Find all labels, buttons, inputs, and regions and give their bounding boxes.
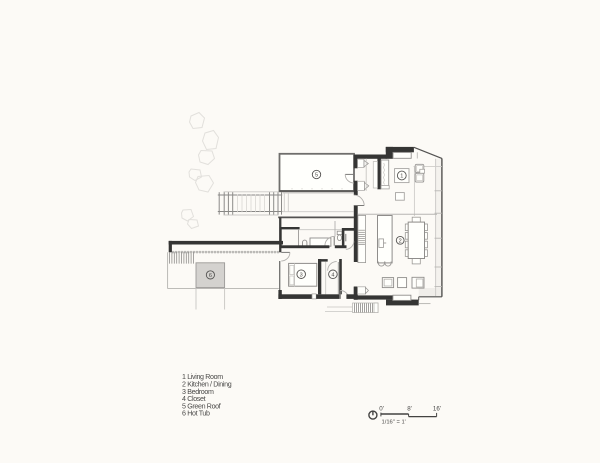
svg-text:3: 3 (300, 272, 303, 278)
svg-text:6: 6 (209, 273, 212, 279)
svg-text:4: 4 (331, 272, 334, 278)
svg-text:1/16" = 1': 1/16" = 1' (382, 419, 406, 425)
svg-text:6 Hot Tub: 6 Hot Tub (182, 410, 210, 418)
svg-text:16': 16' (433, 406, 441, 413)
svg-text:8': 8' (407, 406, 412, 413)
svg-text:2: 2 (399, 238, 402, 244)
svg-text:0': 0' (379, 406, 384, 413)
svg-text:5: 5 (315, 173, 318, 179)
svg-text:1: 1 (400, 174, 403, 180)
